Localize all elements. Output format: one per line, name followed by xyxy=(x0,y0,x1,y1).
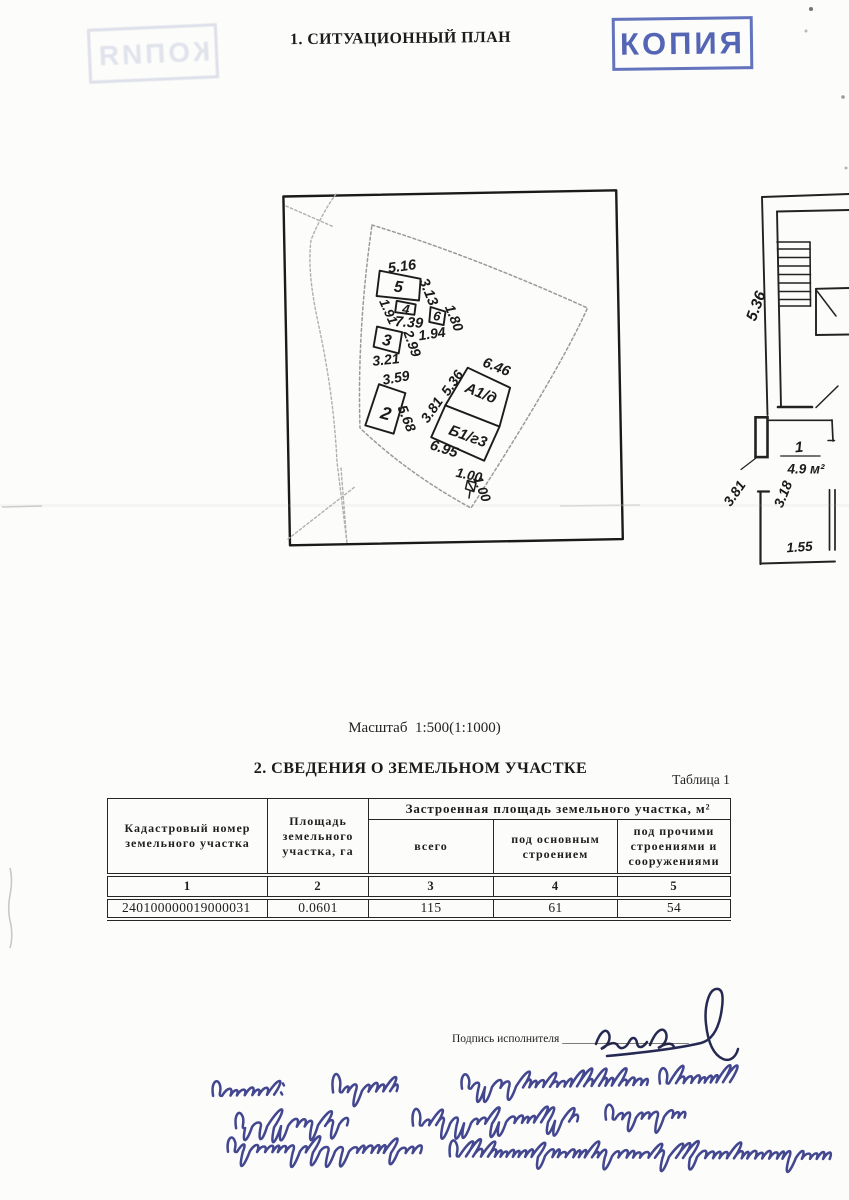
svg-text:5.16: 5.16 xyxy=(387,257,418,277)
svg-text:1: 1 xyxy=(794,439,804,457)
svg-text:1.55: 1.55 xyxy=(786,539,814,556)
svg-text:4.9 м²: 4.9 м² xyxy=(787,462,826,477)
svg-text:3.59: 3.59 xyxy=(381,367,411,388)
svg-text:3.21: 3.21 xyxy=(372,350,401,369)
svg-text:1.80: 1.80 xyxy=(442,302,467,333)
svg-text:1.94: 1.94 xyxy=(417,324,446,344)
